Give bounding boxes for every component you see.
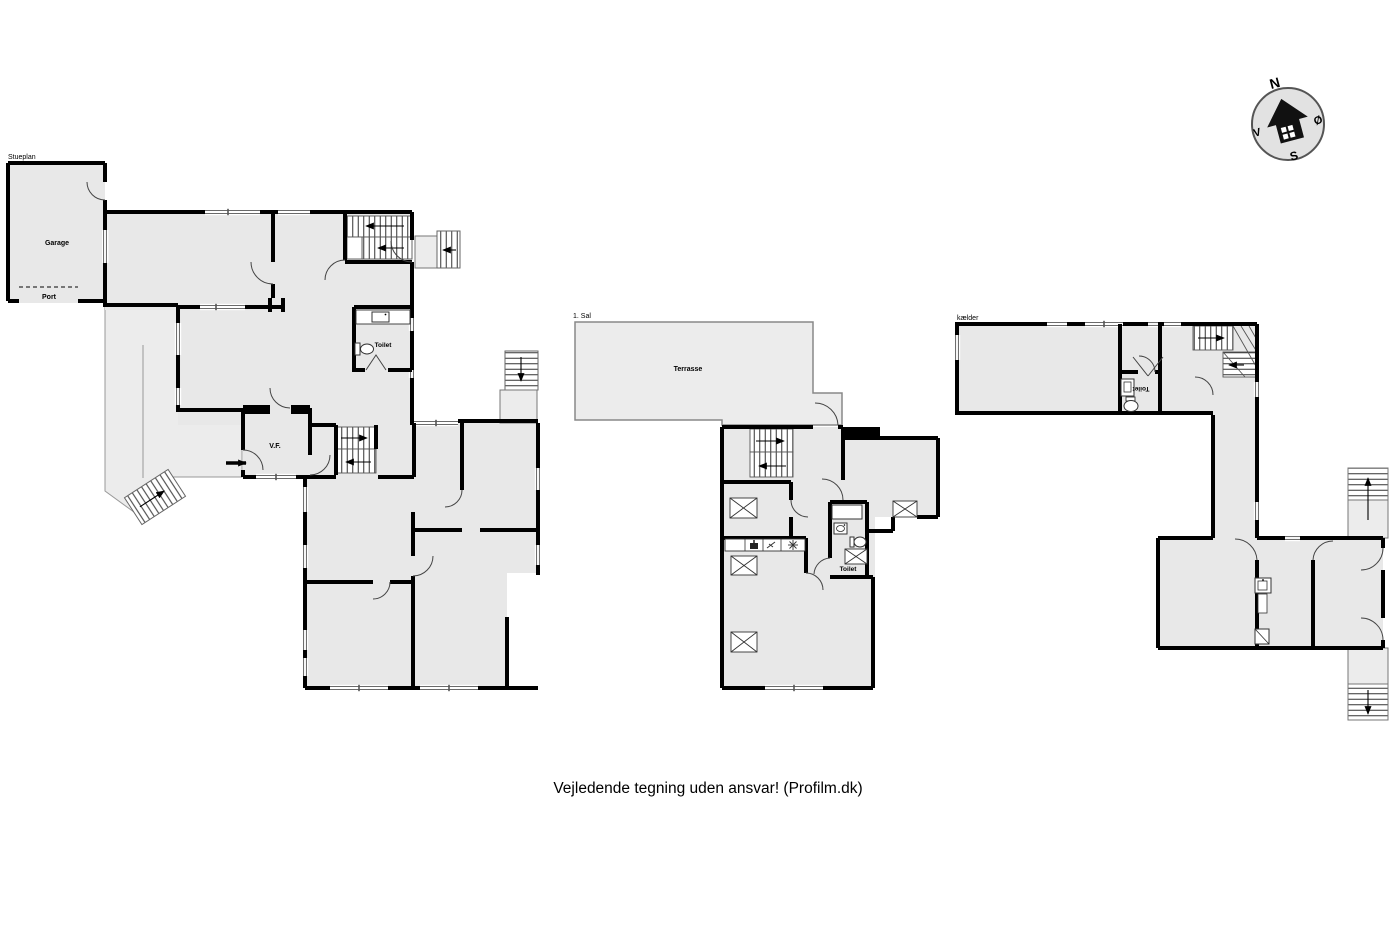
- toilet-label-sal1: Toilet: [840, 566, 858, 573]
- port-label: Port: [42, 294, 57, 301]
- terrasse-label: Terrasse: [674, 366, 703, 373]
- toilet-label-kaelder: Toilet: [1132, 385, 1150, 392]
- kitchen-counter-icon: [725, 539, 805, 551]
- plan-kaelder: kælder Toilet: [954, 315, 1388, 720]
- disclaimer-text: Vejledende tegning uden ansvar! (Profilm…: [553, 780, 862, 797]
- freezer-icon: [788, 540, 798, 550]
- exterior-stair-upper: [415, 231, 460, 268]
- stair-lower-hall: [336, 427, 376, 473]
- plan-title-kaelder: kælder: [957, 315, 979, 322]
- stair-upper-hall: [347, 216, 412, 259]
- toilet-icon: [850, 537, 866, 547]
- plan-sal1: 1. Sal Terrasse Toilet: [573, 313, 938, 691]
- garage-label: Garage: [45, 240, 69, 247]
- vf-label: V.F.: [269, 443, 280, 450]
- exterior-stair-kaelder-down: [1348, 648, 1388, 720]
- floorplan-drawing: Stueplan Garage Port Toilet V.F.: [0, 0, 1400, 933]
- chimney-icon: [1255, 629, 1269, 644]
- toilet-icon: [355, 343, 374, 355]
- sink-icon: [372, 312, 389, 322]
- plan-title-stueplan: Stueplan: [8, 154, 36, 161]
- toilet-label-stueplan: Toilet: [375, 342, 393, 349]
- plan-title-sal1: 1. Sal: [573, 313, 591, 320]
- exterior-stair-kaelder-up: [1348, 468, 1388, 538]
- stair-sal1: [750, 429, 793, 477]
- compass-north: N: [1268, 74, 1282, 92]
- terrace-area: [575, 322, 842, 425]
- windows-sal1: [765, 685, 823, 691]
- plan-stueplan: Stueplan Garage Port Toilet V.F.: [8, 154, 541, 691]
- exterior-stair-wing: [500, 351, 538, 423]
- compass-rose: N Ø S V: [1252, 74, 1325, 164]
- floorplan-page: Stueplan Garage Port Toilet V.F.: [0, 0, 1400, 933]
- sink-icon: [1121, 379, 1134, 396]
- bath-icon: [832, 505, 862, 519]
